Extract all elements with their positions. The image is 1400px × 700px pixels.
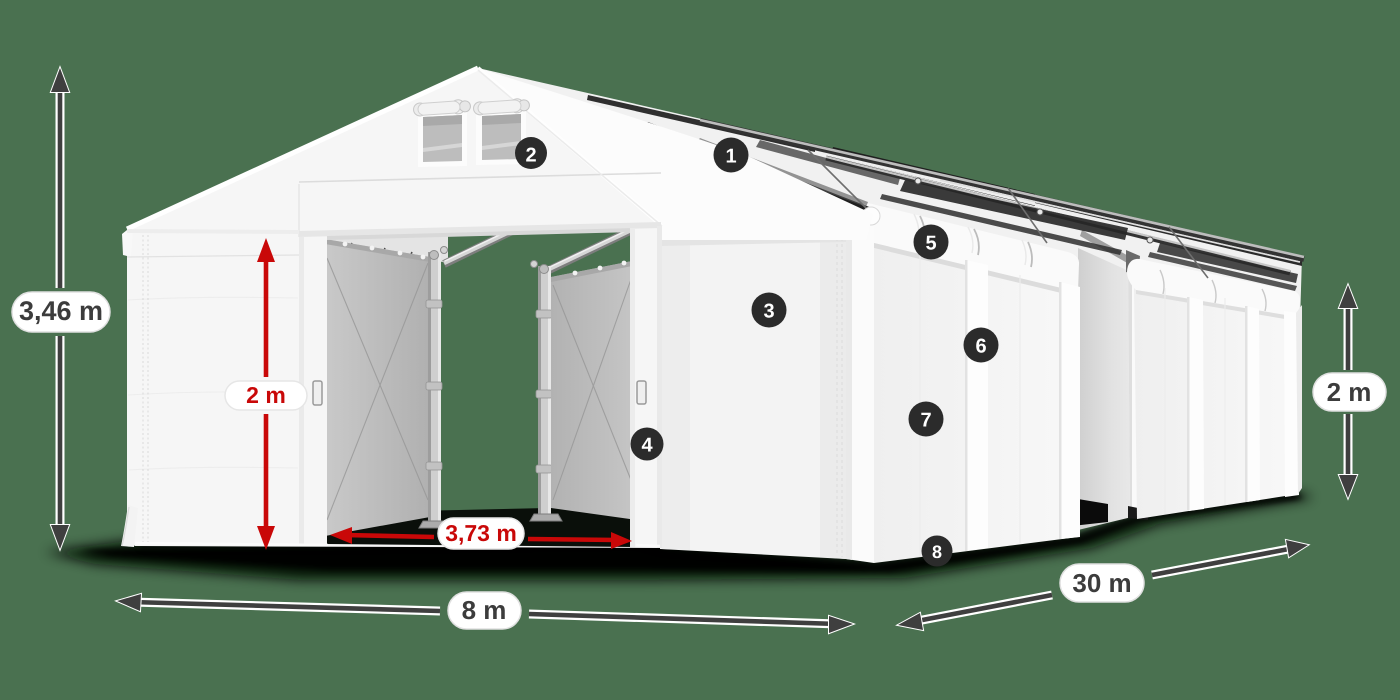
svg-text:2 m: 2 m [246,382,286,408]
svg-text:5: 5 [925,233,936,255]
svg-text:30 m: 30 m [1072,568,1131,598]
svg-text:2 m: 2 m [1327,377,1372,407]
svg-text:2: 2 [525,145,536,167]
svg-text:4: 4 [641,435,653,457]
svg-text:8 m: 8 m [462,595,507,625]
svg-text:1: 1 [725,146,736,168]
svg-text:3,73 m: 3,73 m [445,520,517,546]
svg-text:6: 6 [975,336,986,358]
svg-text:8: 8 [932,542,942,562]
svg-text:3,46 m: 3,46 m [19,296,103,326]
svg-text:7: 7 [920,410,931,432]
svg-text:3: 3 [763,301,774,323]
